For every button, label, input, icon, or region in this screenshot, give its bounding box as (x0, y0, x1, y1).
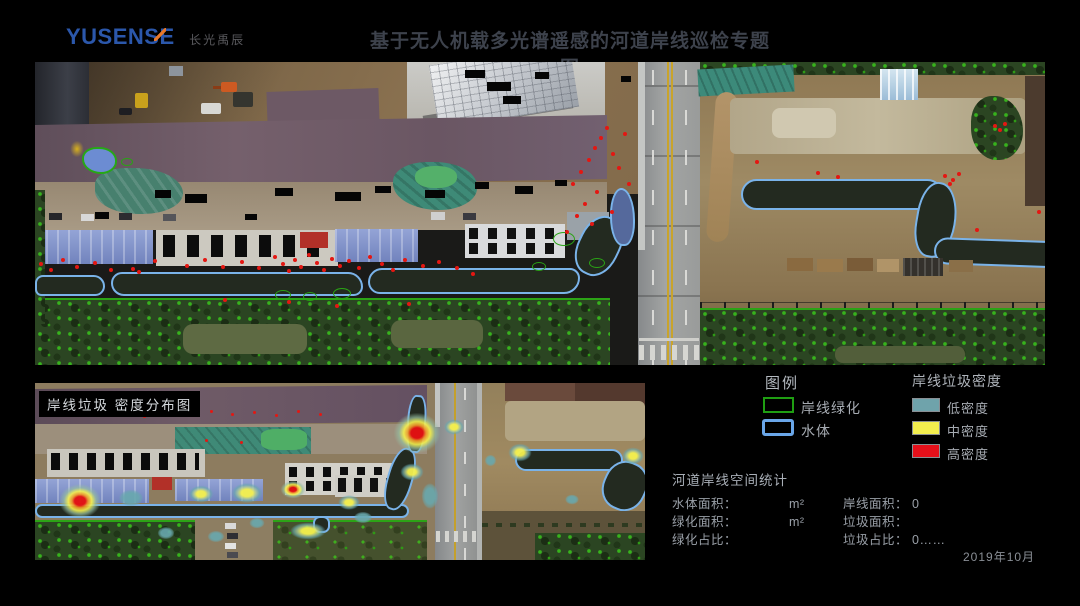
heatmap-blob-mid (335, 493, 363, 512)
black-patch (375, 186, 391, 193)
road (638, 62, 700, 365)
garbage-dot (275, 414, 278, 417)
material-pile (787, 258, 813, 271)
car (227, 533, 238, 539)
heatmap-blob-high (53, 479, 107, 523)
black-patch (185, 194, 207, 203)
vegetation-ring (333, 288, 351, 299)
logo: YUSENSE 长光禹辰 (66, 24, 245, 50)
water-channel (35, 275, 105, 296)
heatmap-blob-low (419, 479, 441, 513)
stat-row-garbage-ratio: 垃圾占比： 0…… (843, 529, 960, 548)
black-patch (621, 76, 631, 82)
shed-doors (469, 228, 561, 239)
heatmap-blob-mid (227, 480, 267, 506)
road-lane-dash (652, 62, 654, 365)
statistics-title: 河道岸线空间统计 (672, 469, 788, 489)
car (225, 543, 236, 549)
garbage-dot (421, 264, 425, 268)
garbage-dot (391, 268, 395, 272)
thematic-map-page: YUSENSE 长光禹辰 基于无人机载多光谱遥感的河道岸线巡检专题图 岸线垃圾 … (0, 0, 1080, 606)
heatmap-blob-mid (185, 483, 217, 505)
garbage-dot (315, 261, 319, 265)
vegetation-ring (303, 292, 317, 301)
car (163, 214, 176, 221)
heatmap-blob-low (563, 493, 581, 506)
black-patch (425, 190, 445, 198)
garbage-dot (471, 272, 475, 276)
garbage-dot (590, 222, 594, 226)
hedge-row (482, 523, 645, 527)
density-legend-title: 岸线垃圾密度 (912, 371, 1002, 391)
heatmap-blob-low (483, 453, 498, 468)
stat-unit: m² (789, 497, 805, 511)
garbage-dot (595, 190, 599, 194)
garbage-dot (380, 262, 384, 266)
stat-label: 岸线面积： (843, 493, 908, 512)
stat-row-water-area: 水体面积： m² (672, 493, 805, 512)
vegetation-band (35, 298, 610, 365)
car (463, 213, 476, 220)
garbage-dot (137, 270, 141, 274)
garbage-dot (993, 124, 997, 128)
main-orthophoto-map (35, 62, 1045, 365)
garbage-dot (1037, 210, 1041, 214)
shed-top (169, 66, 183, 76)
garbage-dot (948, 182, 952, 186)
garbage-dot (836, 175, 840, 179)
garbage-dot (455, 266, 459, 270)
material-pile (847, 258, 873, 271)
concrete-pad (505, 401, 645, 441)
garbage-dot (579, 170, 583, 174)
black-patch (475, 182, 489, 189)
car (49, 213, 62, 220)
warehouse-blue-roof (35, 230, 153, 264)
heatmap-blob-mid (285, 520, 331, 542)
heatmap-blob-low (115, 487, 147, 509)
shed-windows (51, 453, 199, 470)
yellow-soil-spot (68, 138, 86, 160)
tarp-mid-bright (415, 166, 457, 188)
car (119, 108, 132, 115)
heatmap-blob-high (277, 478, 309, 501)
black-patch (487, 82, 511, 91)
container (903, 258, 943, 276)
stat-row-greening-area: 绿化面积： m² (672, 511, 805, 530)
stat-label: 绿化面积： (672, 511, 737, 530)
red-roof (152, 477, 172, 490)
inset-map-label: 岸线垃圾 密度分布图 (39, 391, 200, 417)
garbage-dot (75, 265, 79, 269)
garbage-dot (593, 146, 597, 150)
water-pond (610, 188, 635, 246)
garbage-density-inset-map: 岸线垃圾 密度分布图 (35, 383, 645, 560)
garbage-dot (437, 260, 441, 264)
truck (201, 103, 221, 114)
car (225, 523, 236, 529)
stat-row-greening-ratio: 绿化占比： (672, 529, 789, 548)
black-patch (515, 186, 533, 194)
garbage-dot (61, 258, 65, 262)
heatmap-blob-low (247, 516, 267, 530)
material-pile (817, 259, 843, 272)
legend-label-water: 水体 (801, 421, 831, 441)
black-patch (275, 188, 293, 196)
garbage-dot (221, 265, 225, 269)
logo-chinese-name: 长光禹辰 (189, 33, 245, 47)
garbage-dot (322, 268, 326, 272)
legend-label-vegetation: 岸线绿化 (801, 398, 861, 418)
garbage-dot (93, 261, 97, 265)
garbage-dot (403, 258, 407, 262)
map-date: 2019年10月 (963, 548, 1035, 565)
garbage-dot (299, 265, 303, 269)
garbage-dot (599, 136, 603, 140)
heatmap-blob-low (155, 525, 177, 541)
garbage-dot (623, 132, 627, 136)
machine (233, 92, 253, 107)
garbage-dot (583, 202, 587, 206)
garbage-dot (153, 259, 157, 263)
dark-materials (505, 383, 575, 401)
stat-label: 水体面积： (672, 493, 737, 512)
garbage-dot (998, 128, 1002, 132)
vegetation-ring (121, 158, 133, 166)
car (431, 212, 445, 220)
garbage-dot (293, 258, 297, 262)
black-patch (155, 190, 171, 198)
garbage-dot (273, 255, 277, 259)
logo-accent-icon (154, 28, 166, 41)
grass-patch (835, 346, 965, 363)
garbage-dot (319, 413, 322, 416)
water-pond-green-outline (82, 147, 117, 174)
garbage-dot (335, 304, 339, 308)
stat-label: 绿化占比： (672, 529, 737, 548)
tarp-right (697, 65, 794, 97)
road-lane-dash (685, 62, 687, 365)
garbage-dot (407, 302, 411, 306)
garbage-dot (755, 160, 759, 164)
black-patch (555, 180, 567, 186)
garbage-dot (257, 266, 261, 270)
density-label-high: 高密度 (947, 444, 989, 463)
garbage-dot (627, 182, 631, 186)
loader (135, 93, 148, 108)
excavator (221, 82, 237, 92)
garbage-dot (571, 182, 575, 186)
black-patch (245, 214, 257, 220)
garbage-dot (368, 255, 372, 259)
garbage-dot (109, 268, 113, 272)
garbage-dot (203, 258, 207, 262)
black-patch (335, 192, 361, 201)
stat-label: 垃圾占比： (843, 529, 908, 548)
garbage-dot (611, 152, 615, 156)
garbage-dot (253, 411, 256, 414)
tree-row (535, 533, 645, 560)
garbage-dot (240, 260, 244, 264)
vegetation-ring (275, 290, 291, 300)
blue-shed (880, 69, 918, 100)
garbage-dot (347, 259, 351, 263)
road-yellow-line (671, 62, 673, 365)
garbage-dot (587, 158, 591, 162)
concrete-pad-light (772, 108, 836, 138)
garbage-dot (210, 410, 213, 413)
red-roof (300, 232, 328, 248)
heatmap-blob-mid (619, 445, 645, 467)
garbage-dot (281, 262, 285, 266)
water-channel (111, 272, 363, 296)
black-patch (95, 212, 109, 219)
black-patch (503, 96, 521, 104)
garbage-dot (131, 267, 135, 271)
garbage-dot (338, 264, 342, 268)
garbage-dot (330, 257, 334, 261)
warehouse-blue-roof (335, 229, 418, 262)
density-label-low: 低密度 (947, 398, 989, 417)
garbage-dot (287, 300, 291, 304)
dark-soil-edge (1025, 76, 1045, 206)
garbage-dot (39, 262, 43, 266)
stat-row-garbage-area: 垃圾面积： (843, 511, 960, 530)
garbage-dot (951, 178, 955, 182)
heatmap-blob-mid (505, 441, 535, 464)
stat-unit: m² (789, 515, 805, 529)
garbage-dot (297, 410, 300, 413)
black-patch (535, 72, 549, 79)
road-yellow-line (667, 62, 669, 365)
garbage-dot (575, 214, 579, 218)
vegetation-edge-left (35, 190, 45, 324)
heatmap-blob-high (387, 407, 447, 459)
stat-value: 0…… (912, 533, 956, 547)
stat-label: 垃圾面积： (843, 511, 908, 530)
road-stop-line (639, 338, 699, 341)
heatmap-blob-low (351, 510, 375, 525)
car (227, 552, 238, 558)
material-pile (949, 260, 973, 272)
stat-row-shoreline-area: 岸线面积： 0 (843, 493, 960, 512)
car (81, 214, 94, 221)
garbage-dot (565, 230, 569, 234)
garbage-dot (617, 166, 621, 170)
vegetation-ring (589, 258, 605, 268)
garbage-dot (223, 298, 227, 302)
garbage-dot (205, 439, 208, 442)
road-median (638, 62, 645, 250)
garbage-dot (605, 126, 609, 130)
garbage-dot (357, 266, 361, 270)
density-swatch-high (912, 444, 940, 458)
density-swatch-low (912, 398, 940, 412)
black-patch (465, 70, 485, 78)
road-crosswalk (436, 531, 476, 542)
garbage-dot (610, 210, 614, 214)
garbage-dot (943, 174, 947, 178)
garbage-dot (975, 228, 979, 232)
road-crosswalk (639, 345, 699, 360)
river-channel (741, 179, 943, 210)
heatmap-blob-mid (397, 461, 427, 483)
vegetation-ring (532, 262, 546, 271)
tarp-bright (261, 429, 307, 450)
garbage-dot (816, 171, 820, 175)
garbage-dot (231, 413, 234, 416)
stat-value: 0 (912, 497, 956, 511)
garbage-dot (185, 264, 189, 268)
garbage-dot (957, 172, 961, 176)
grass-patch (183, 324, 307, 354)
car (119, 213, 132, 220)
garbage-dot (307, 253, 311, 257)
density-label-mid: 中密度 (947, 421, 989, 440)
garbage-dot (287, 269, 291, 273)
garbage-dot (240, 441, 243, 444)
grass-patch (391, 320, 483, 348)
garbage-dot (1003, 122, 1007, 126)
legend-swatch-water (762, 419, 794, 436)
heatmap-blob-mid (441, 417, 467, 437)
heatmap-blob-low (205, 529, 227, 544)
legend-title: 图例 (765, 372, 799, 393)
legend-swatch-vegetation (763, 397, 794, 413)
garbage-dot (49, 268, 53, 272)
vegetation-ring (553, 232, 575, 246)
shed-doors (469, 243, 561, 254)
material-pile (877, 259, 899, 272)
density-swatch-mid (912, 421, 940, 435)
